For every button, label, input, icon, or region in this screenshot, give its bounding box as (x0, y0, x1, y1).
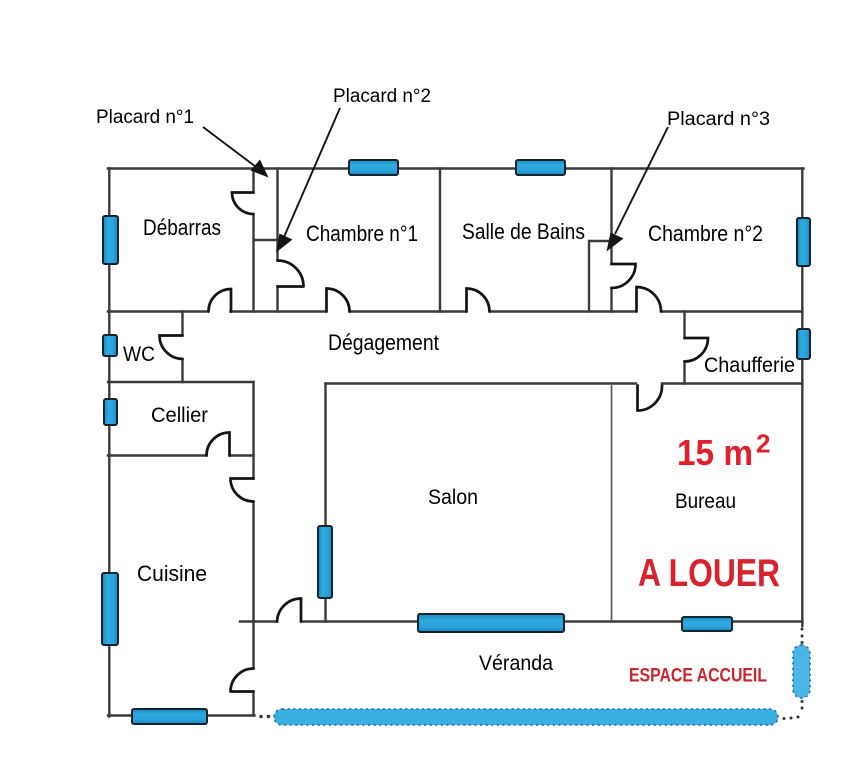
svg-text:Cuisine: Cuisine (137, 561, 207, 586)
svg-text:2: 2 (756, 429, 770, 459)
svg-text:Chaufferie: Chaufferie (704, 354, 795, 377)
svg-text:Chambre n°1: Chambre n°1 (306, 221, 418, 246)
svg-text:Chambre n°2: Chambre n°2 (648, 221, 763, 246)
svg-text:Placard n°2: Placard n°2 (333, 86, 431, 107)
svg-text:Salle de Bains: Salle de Bains (462, 219, 585, 244)
svg-text:Placard n°1: Placard n°1 (96, 107, 194, 128)
svg-text:A LOUER: A LOUER (638, 552, 780, 595)
svg-text:Véranda: Véranda (479, 652, 553, 675)
svg-text:Bureau: Bureau (675, 490, 736, 513)
svg-text:Placard n°3: Placard n°3 (667, 109, 770, 130)
svg-text:Débarras: Débarras (143, 215, 221, 240)
svg-text:Dégagement: Dégagement (328, 330, 440, 355)
svg-text:15 m: 15 m (677, 432, 753, 473)
svg-text:Salon: Salon (428, 485, 478, 509)
svg-text:ESPACE ACCUEIL: ESPACE ACCUEIL (629, 666, 767, 687)
svg-text:WC: WC (123, 343, 155, 366)
svg-text:Cellier: Cellier (151, 404, 208, 427)
